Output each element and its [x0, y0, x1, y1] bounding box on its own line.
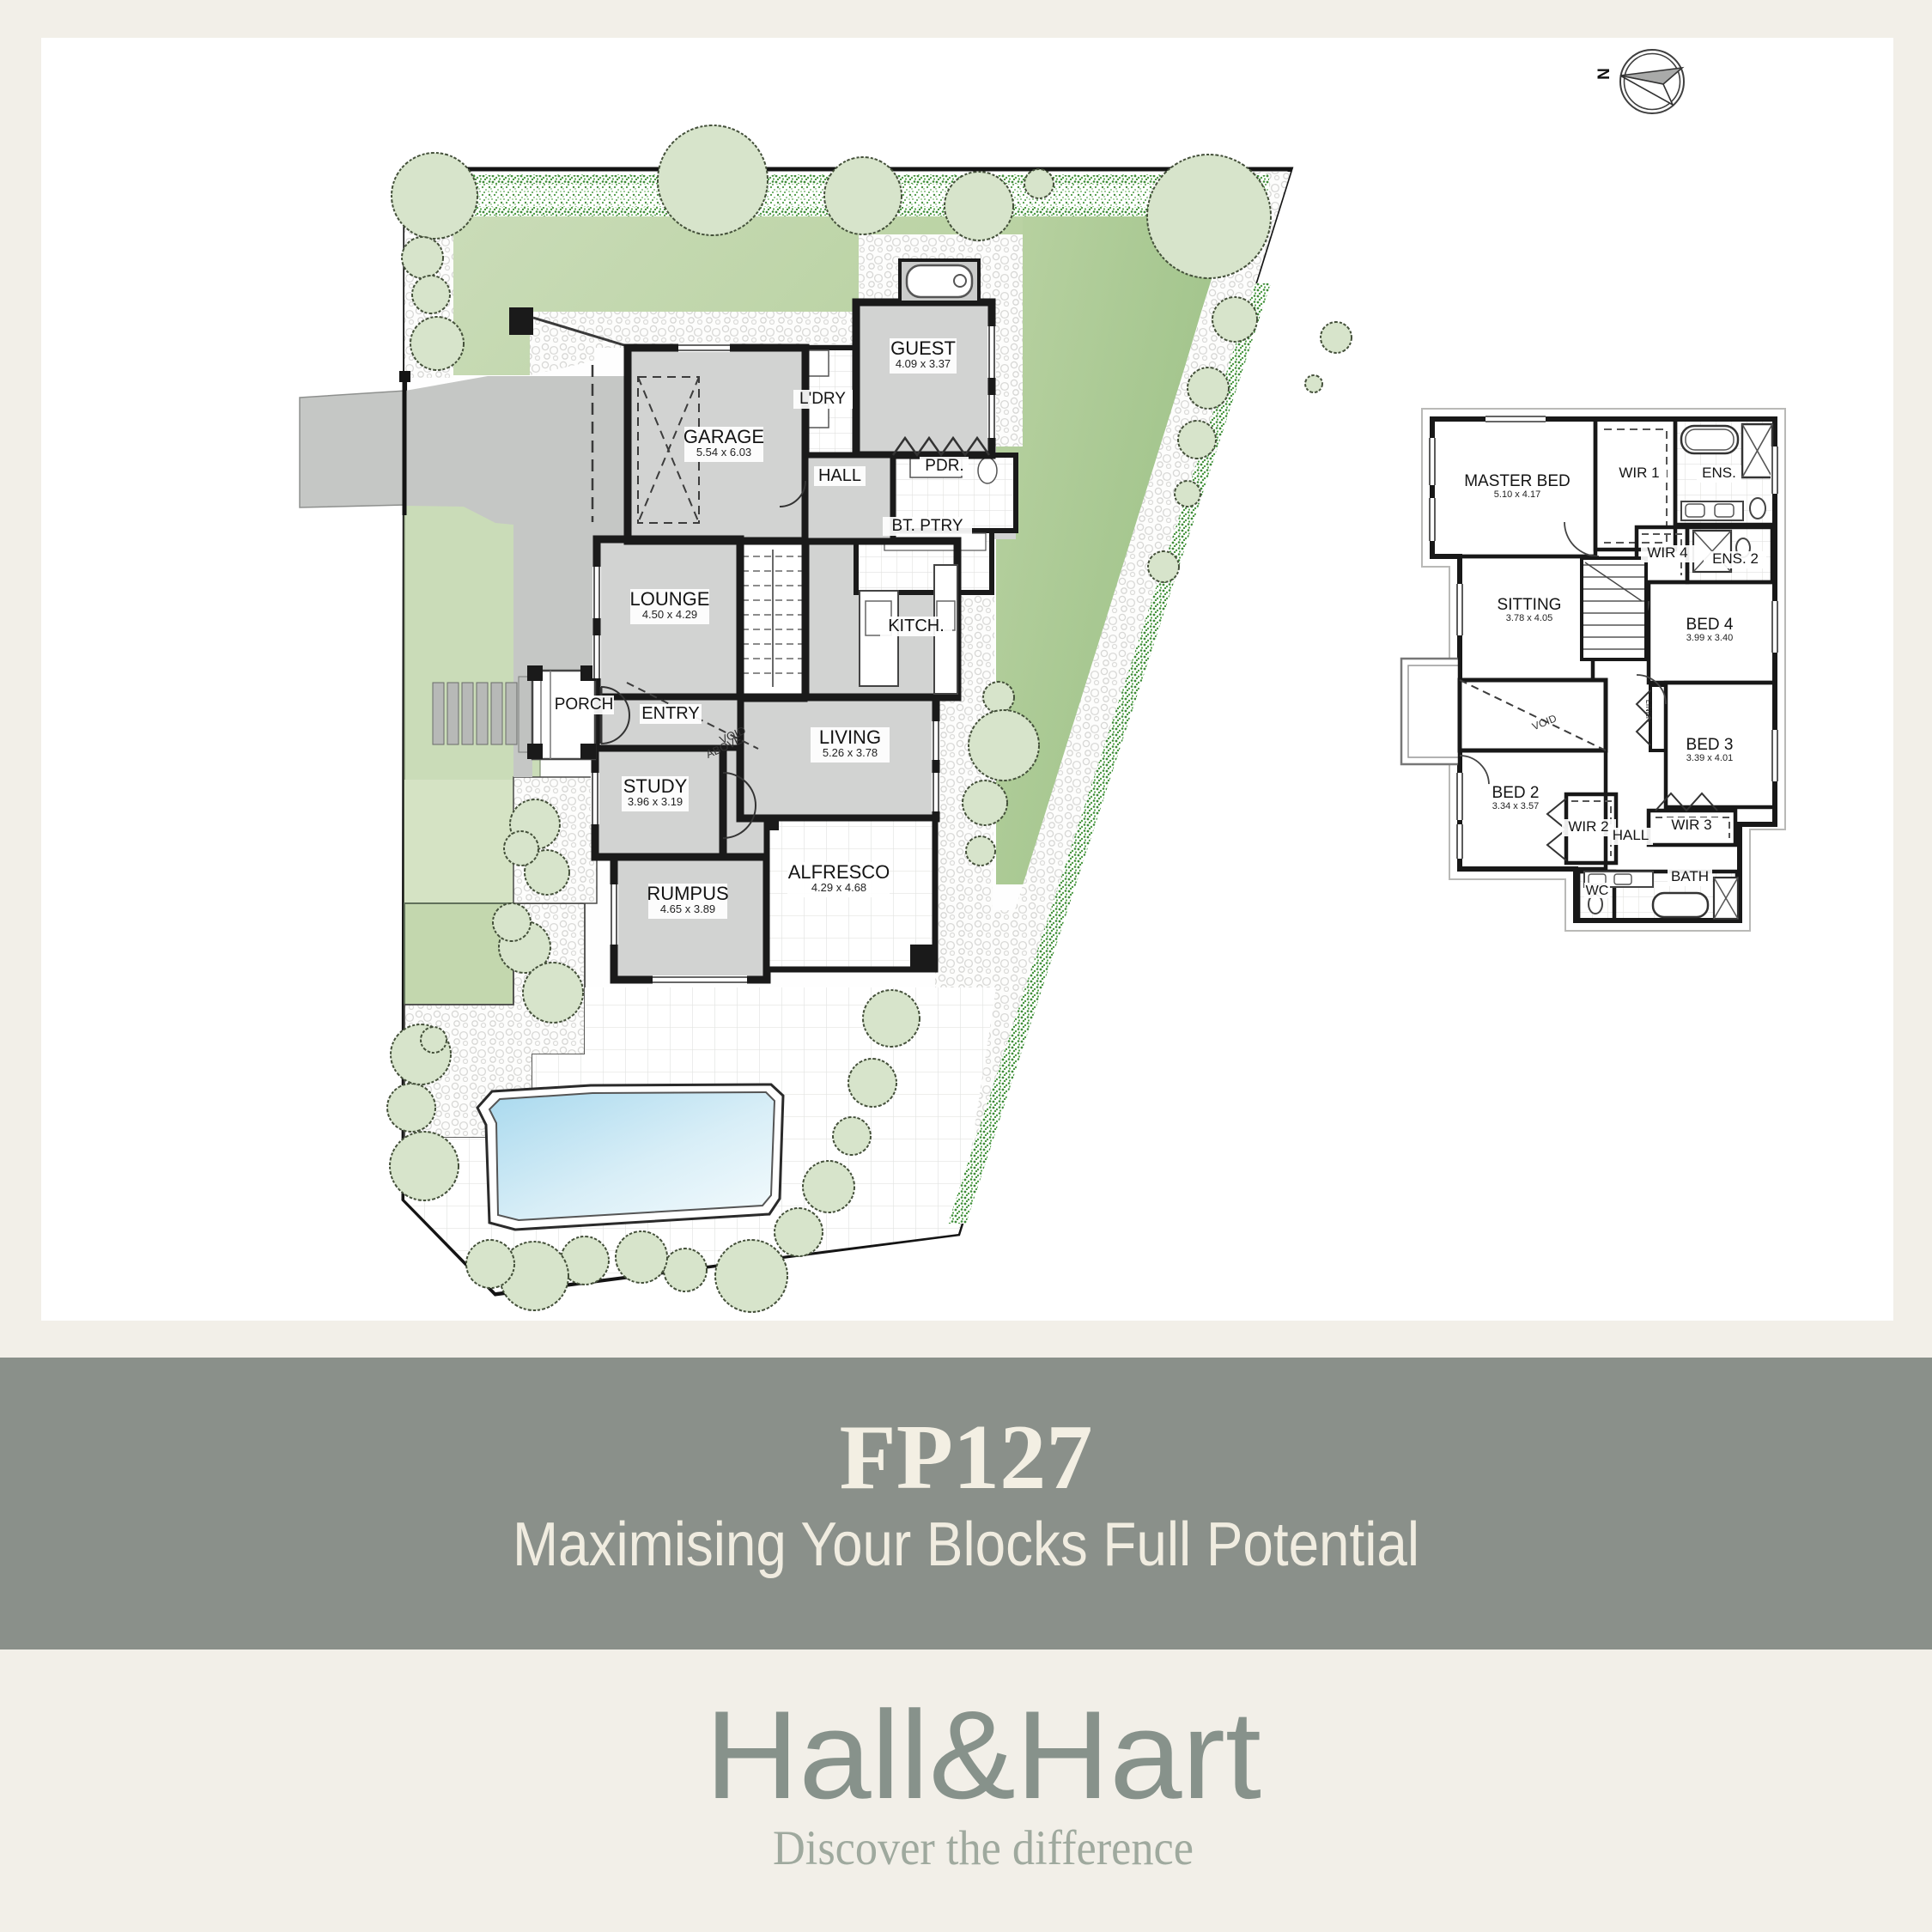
svg-text:BT. PTRY: BT. PTRY — [891, 517, 963, 535]
svg-text:SITTING: SITTING — [1498, 596, 1562, 614]
svg-text:3.39 x 4.01: 3.39 x 4.01 — [1686, 753, 1733, 763]
svg-text:ENS.: ENS. — [1702, 465, 1736, 481]
svg-text:4.50 x 4.29: 4.50 x 4.29 — [642, 608, 697, 621]
svg-text:Maximising Your Blocks Full Po: Maximising Your Blocks Full Potential — [513, 1510, 1419, 1579]
svg-text:WIR 3: WIR 3 — [1671, 817, 1711, 833]
svg-text:5.26 x 3.78: 5.26 x 3.78 — [823, 746, 878, 759]
svg-text:3.78 x 4.05: 3.78 x 4.05 — [1506, 613, 1552, 623]
svg-text:WIR 4: WIR 4 — [1647, 544, 1687, 561]
svg-text:PDR.: PDR. — [925, 457, 963, 475]
svg-text:4.65 x 3.89: 4.65 x 3.89 — [660, 902, 715, 915]
svg-text:HALL: HALL — [1613, 827, 1649, 843]
svg-text:MASTER BED: MASTER BED — [1464, 472, 1571, 490]
svg-text:N: N — [1595, 68, 1613, 80]
svg-text:GUEST: GUEST — [890, 337, 956, 359]
svg-text:3.99 x 3.40: 3.99 x 3.40 — [1686, 633, 1733, 643]
svg-text:STUDY: STUDY — [623, 775, 688, 797]
svg-text:5.54 x 6.03: 5.54 x 6.03 — [696, 446, 751, 459]
svg-text:3.34 x 3.57: 3.34 x 3.57 — [1492, 801, 1539, 811]
svg-text:ENS. 2: ENS. 2 — [1712, 550, 1759, 567]
svg-text:LIVING: LIVING — [819, 726, 881, 748]
svg-text:WIR 2: WIR 2 — [1568, 818, 1608, 835]
svg-text:WC: WC — [1586, 884, 1609, 898]
svg-text:Discover the difference: Discover the difference — [773, 1821, 1194, 1875]
svg-text:ALFRESCO: ALFRESCO — [788, 861, 890, 883]
svg-text:GARAGE: GARAGE — [683, 426, 764, 447]
svg-text:PORCH: PORCH — [555, 696, 614, 714]
svg-text:BED 3: BED 3 — [1686, 736, 1734, 754]
svg-text:RUMPUS: RUMPUS — [647, 883, 728, 904]
svg-text:WIR 1: WIR 1 — [1619, 465, 1659, 481]
svg-text:5.10 x 4.17: 5.10 x 4.17 — [1494, 489, 1540, 500]
svg-text:4.09 x 3.37: 4.09 x 3.37 — [896, 357, 951, 370]
svg-text:4.29 x 4.68: 4.29 x 4.68 — [811, 881, 866, 894]
svg-text:3.96 x 3.19: 3.96 x 3.19 — [628, 795, 683, 808]
svg-text:ENTRY: ENTRY — [641, 704, 699, 723]
svg-text:HALL: HALL — [818, 466, 861, 485]
svg-text:BATH: BATH — [1671, 868, 1709, 884]
svg-text:Hall&Hart: Hall&Hart — [705, 1685, 1261, 1825]
svg-text:BED 2: BED 2 — [1492, 784, 1540, 802]
svg-text:LOUNGE: LOUNGE — [630, 588, 710, 610]
svg-text:BED 4: BED 4 — [1686, 616, 1734, 634]
svg-text:L'DRY: L'DRY — [799, 390, 846, 408]
svg-text:KITCH.: KITCH. — [888, 617, 945, 635]
svg-text:FP127: FP127 — [840, 1406, 1093, 1509]
